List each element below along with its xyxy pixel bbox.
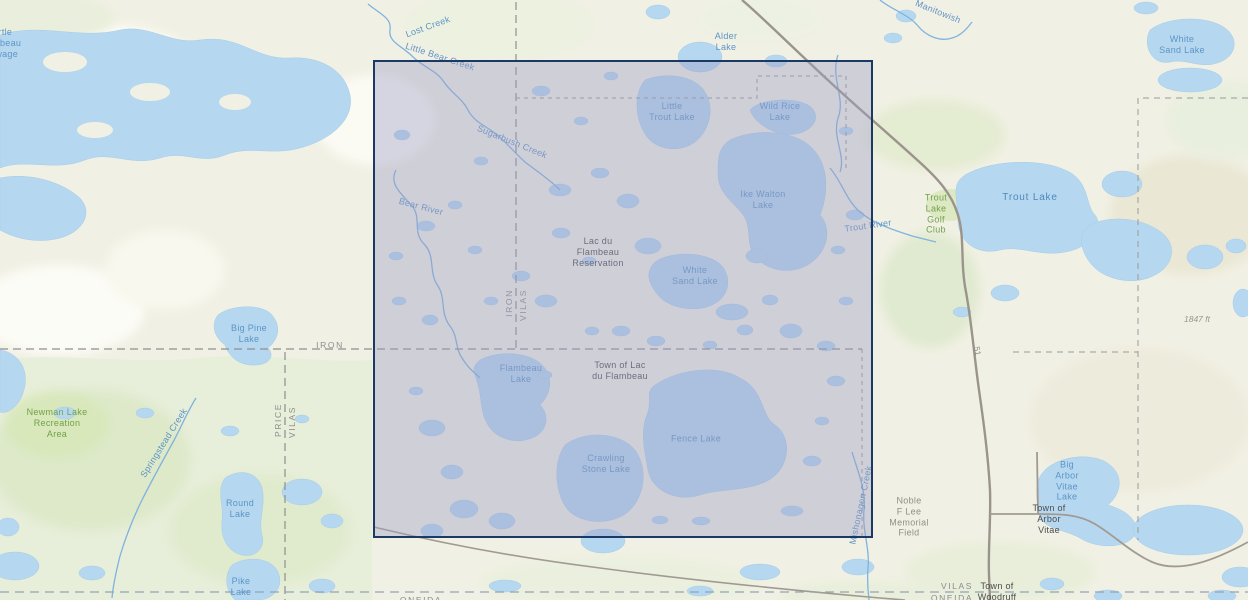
selection-extent[interactable]: [373, 60, 873, 538]
map-canvas[interactable]: Turtle Flambeau Flowage Lost Creek Littl…: [0, 0, 1248, 600]
